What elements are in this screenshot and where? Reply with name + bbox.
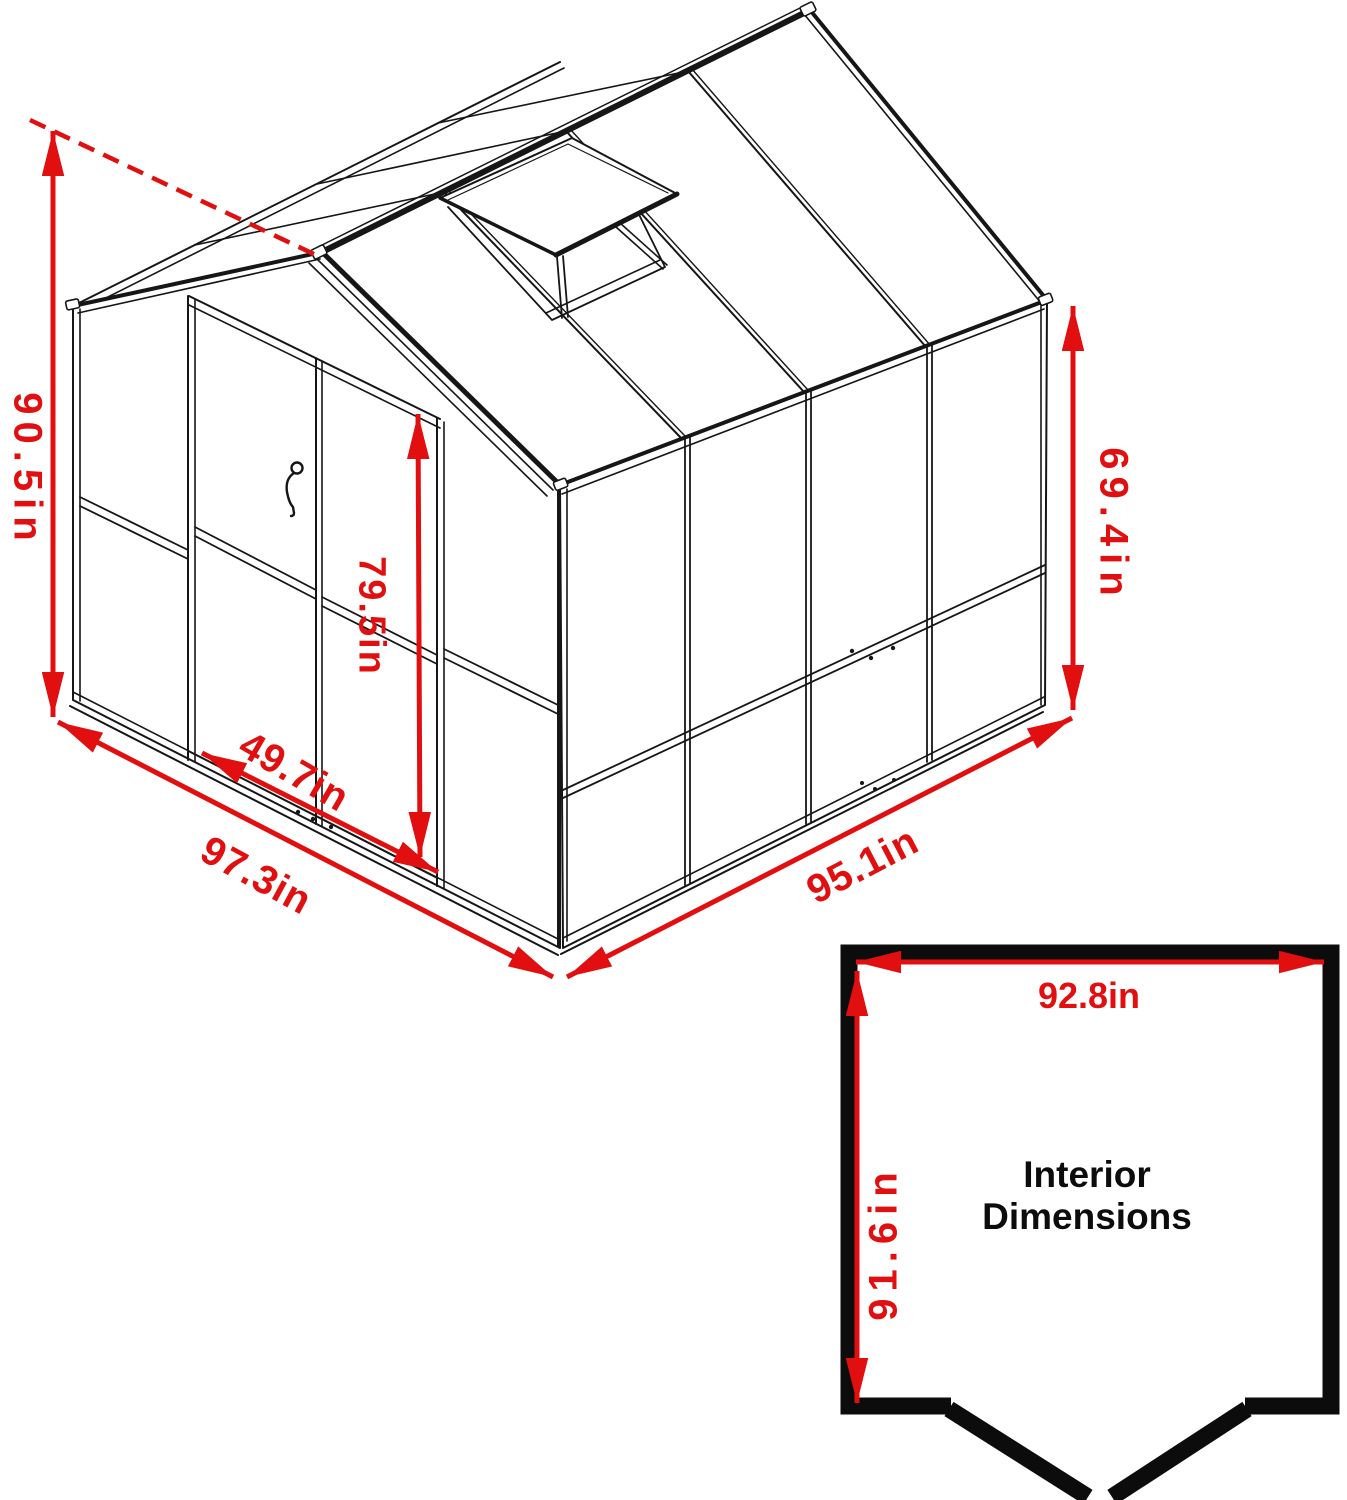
dim-overall-height: 90.5in xyxy=(5,392,50,547)
plan-door-flap-left xyxy=(949,1409,1088,1497)
interior-plan-title-line2: Dimensions xyxy=(982,1196,1192,1237)
dim-door-height: 79.5in xyxy=(350,556,393,676)
dim-interior-width: 92.8in xyxy=(1038,975,1140,1017)
ridge-height-dashed-line xyxy=(30,120,318,256)
dim-interior-depth: 91.6in xyxy=(862,1165,907,1320)
dim-side-wall-height: 69.4in xyxy=(1091,447,1136,602)
greenhouse-drawing xyxy=(0,0,1347,1500)
interior-plan-title-line1: Interior xyxy=(1023,1154,1150,1195)
door-height-arrow xyxy=(418,414,420,857)
plan-door-flap-right xyxy=(1112,1409,1247,1497)
interior-plan-title: Interior Dimensions xyxy=(982,1154,1192,1238)
dimension-diagram-page: 90.5in 69.4in 79.5in 49.7in 97.3in 95.1i… xyxy=(0,0,1347,1500)
greenhouse-structure xyxy=(65,1,1053,955)
